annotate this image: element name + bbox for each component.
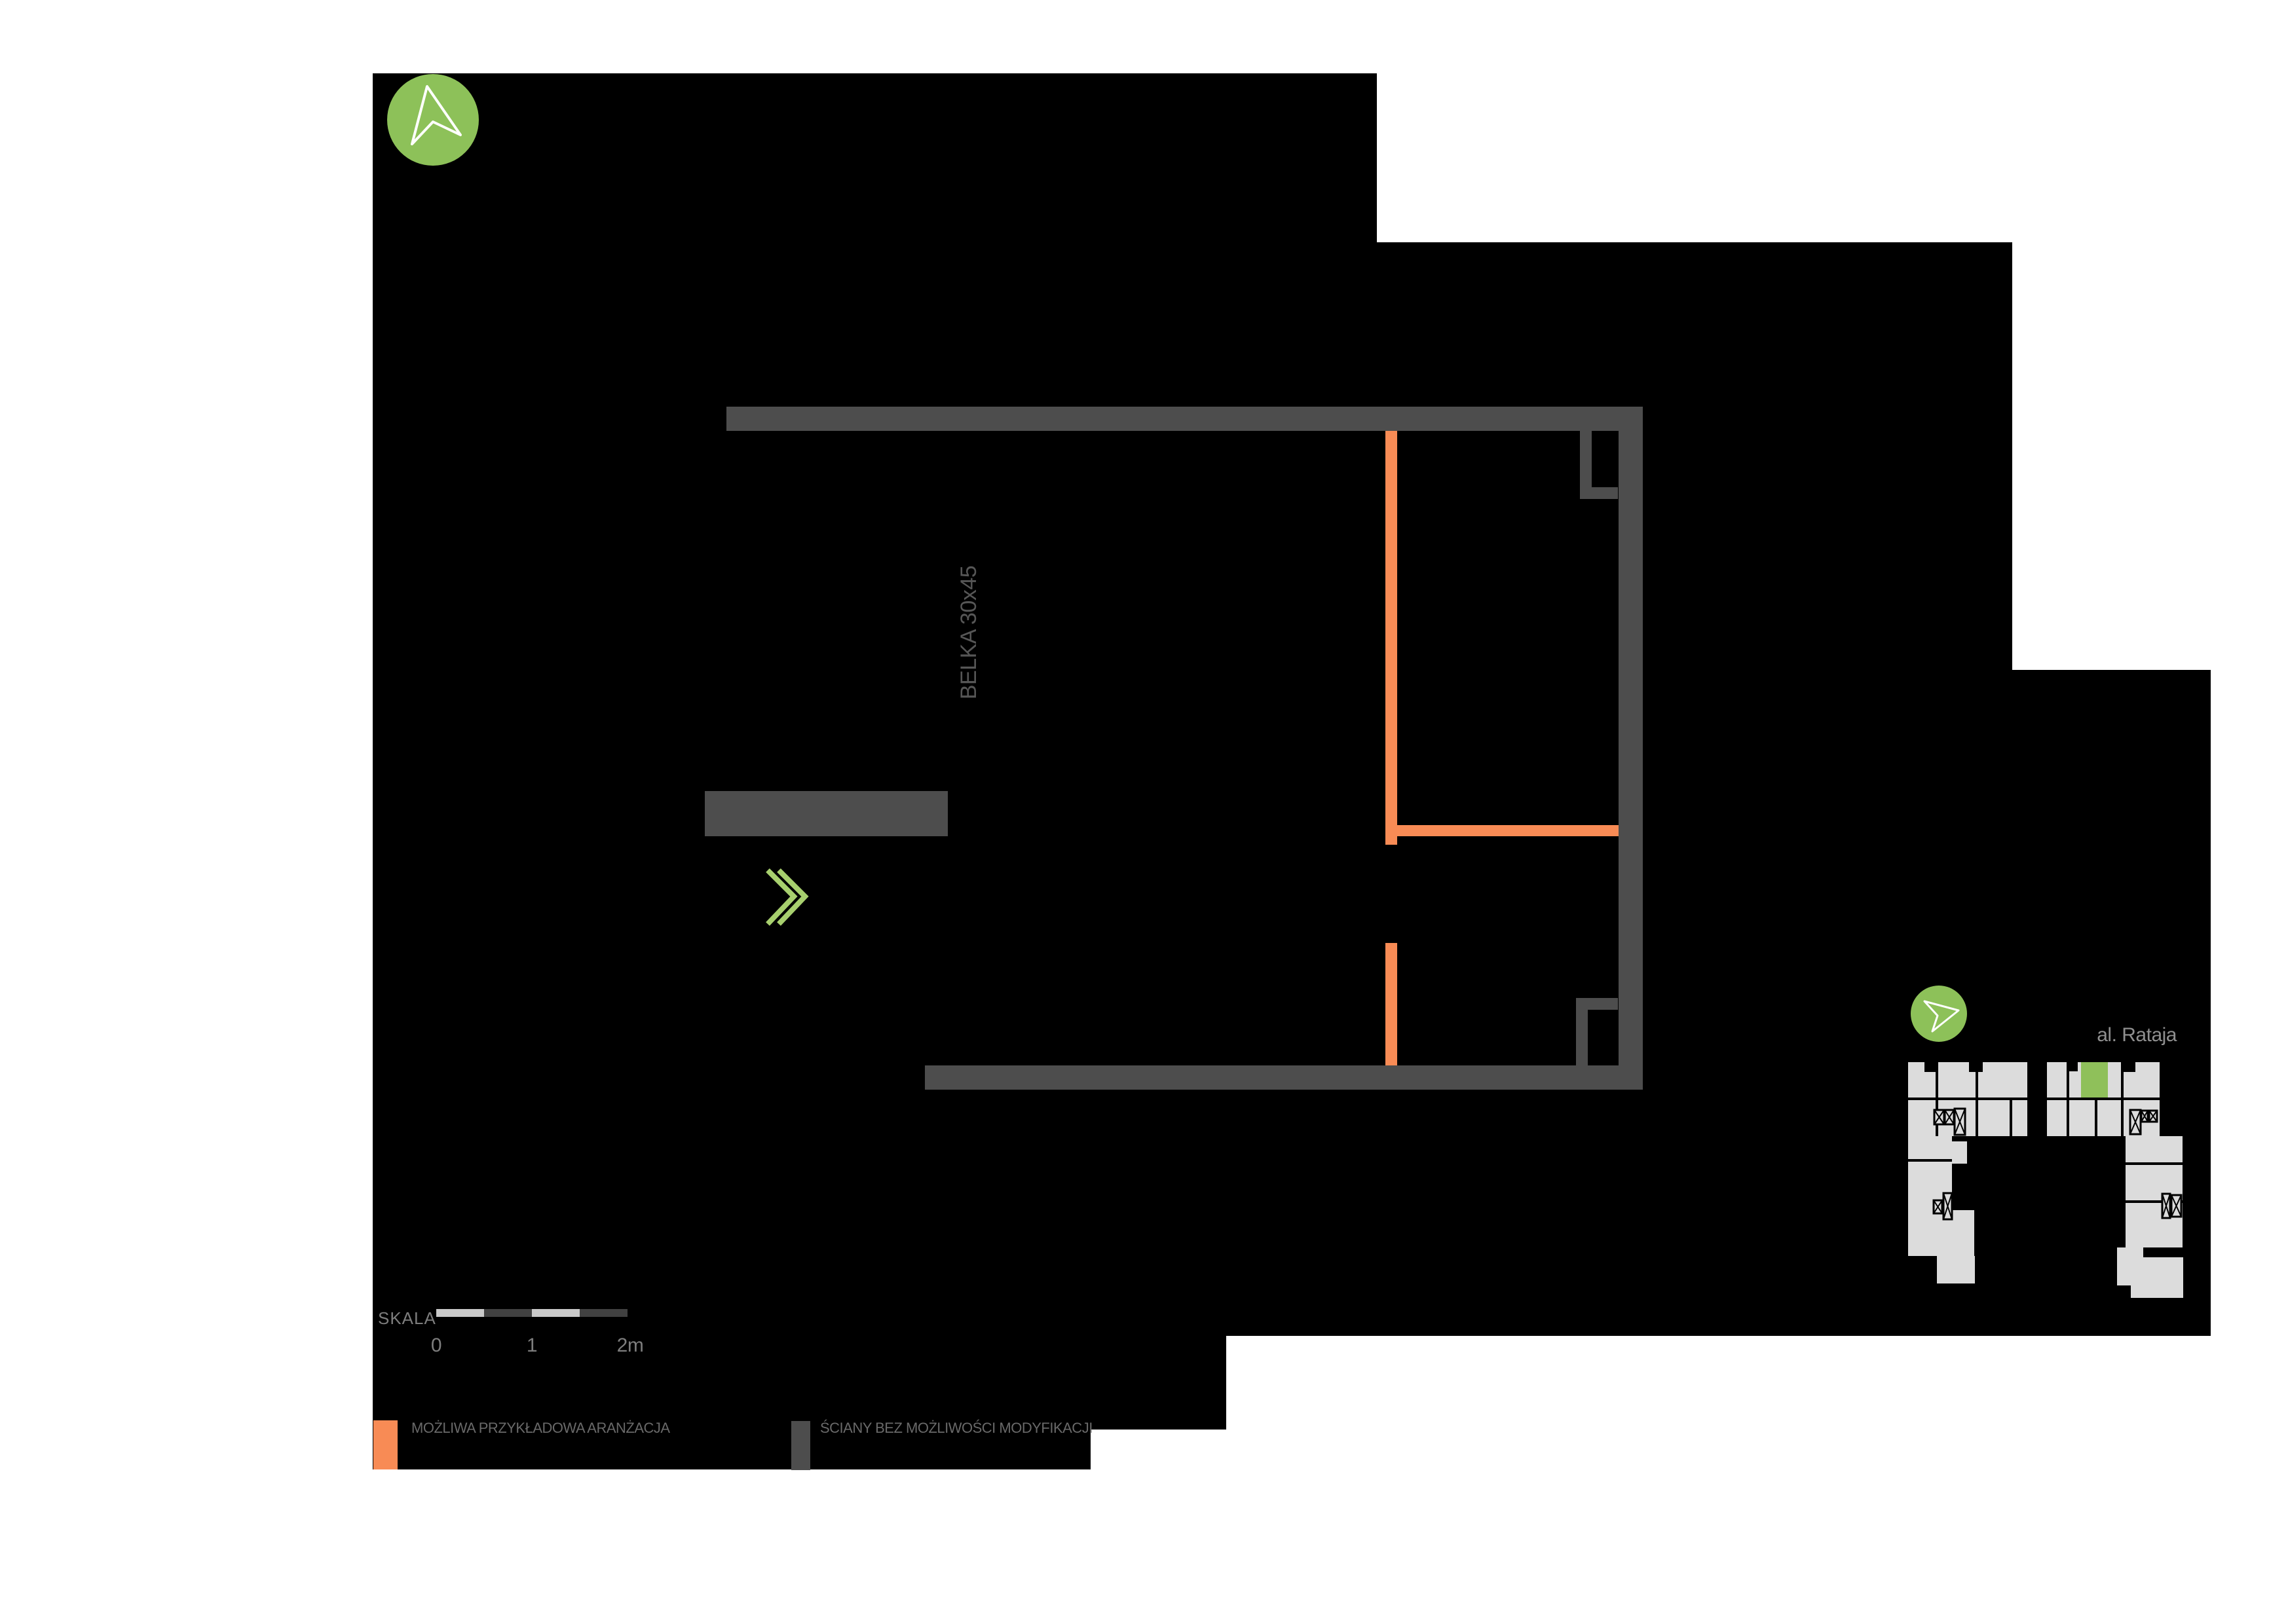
site-map-stair-core	[1943, 1193, 1952, 1219]
scale-bar-segment	[436, 1309, 484, 1317]
site-map-building-block	[1908, 1210, 1974, 1256]
wall-top	[726, 407, 1643, 431]
beam-label: BELKA 30x45	[956, 566, 981, 699]
site-map-stair-core	[2130, 1110, 2141, 1134]
site-map-stair-core	[2162, 1194, 2170, 1218]
plan-canvas-background	[373, 73, 2211, 1469]
wall-bottom	[925, 1065, 1643, 1090]
site-map-stair-core	[2149, 1111, 2157, 1122]
wall-right	[1619, 407, 1643, 1090]
site-map-notch	[2068, 1062, 2078, 1071]
site-map-building-block	[1937, 1256, 1975, 1283]
compass-circle	[387, 74, 479, 166]
street-name-label: al. Rataja	[2097, 1024, 2177, 1046]
wall-interior-slab	[705, 791, 948, 836]
site-map-building-block	[1952, 1141, 1967, 1164]
north-arrow-sitemap	[1911, 986, 1967, 1042]
site-map-stair-core	[1945, 1110, 1954, 1124]
legend-fixed-walls-swatch	[791, 1421, 810, 1470]
compass-circle	[1911, 986, 1967, 1042]
floor-plan-page: BELKA 30x45 SKALA 0 1 2m MOŻLIWA PRZYKŁA…	[0, 0, 2269, 1624]
scale-bar-segment	[580, 1309, 628, 1317]
site-map-highlighted-unit	[2081, 1062, 2108, 1100]
floor-plan-drawing: BELKA 30x45 SKALA 0 1 2m MOŻLIWA PRZYKŁA…	[0, 0, 2269, 1624]
site-map-stair-core	[1934, 1200, 1942, 1213]
site-map-stair-core	[1955, 1109, 1965, 1135]
scale-tick-2m: 2m	[617, 1335, 644, 1356]
site-map-stair-core	[2171, 1195, 2181, 1217]
site-map-building-block	[2131, 1285, 2170, 1298]
arrangement-wall-vertical-upper	[1385, 431, 1397, 845]
wall-notch-top-horizontal	[1580, 487, 1618, 499]
site-map-building-block	[2126, 1136, 2183, 1247]
legend-fixed-walls-label: ŚCIANY BEZ MOŻLIWOŚCI MODYFIKACJI	[820, 1420, 1093, 1436]
wall-notch-bottom-horizontal	[1576, 998, 1618, 1010]
scale-tick-1: 1	[527, 1335, 537, 1356]
scale-bar-segment	[484, 1309, 532, 1317]
site-map-stair-core	[2141, 1111, 2148, 1122]
arrangement-wall-vertical-lower	[1385, 943, 1397, 1065]
scale-bar-label: SKALA	[378, 1308, 436, 1328]
site-map-stair-core	[1934, 1110, 1944, 1124]
site-map-notch	[1924, 1062, 1937, 1072]
scale-bar-segment	[532, 1309, 580, 1317]
generated-shapes-layer	[373, 73, 2211, 1470]
scale-tick-0: 0	[431, 1335, 441, 1356]
site-map-notch	[2122, 1062, 2135, 1072]
legend-arrangement-label: MOŻLIWA PRZYKŁADOWA ARANŻACJA	[411, 1420, 670, 1436]
north-arrow-main	[387, 74, 479, 166]
site-map-building-block	[2117, 1247, 2143, 1285]
legend-arrangement-swatch	[373, 1420, 398, 1469]
arrangement-wall-horizontal	[1397, 825, 1619, 836]
